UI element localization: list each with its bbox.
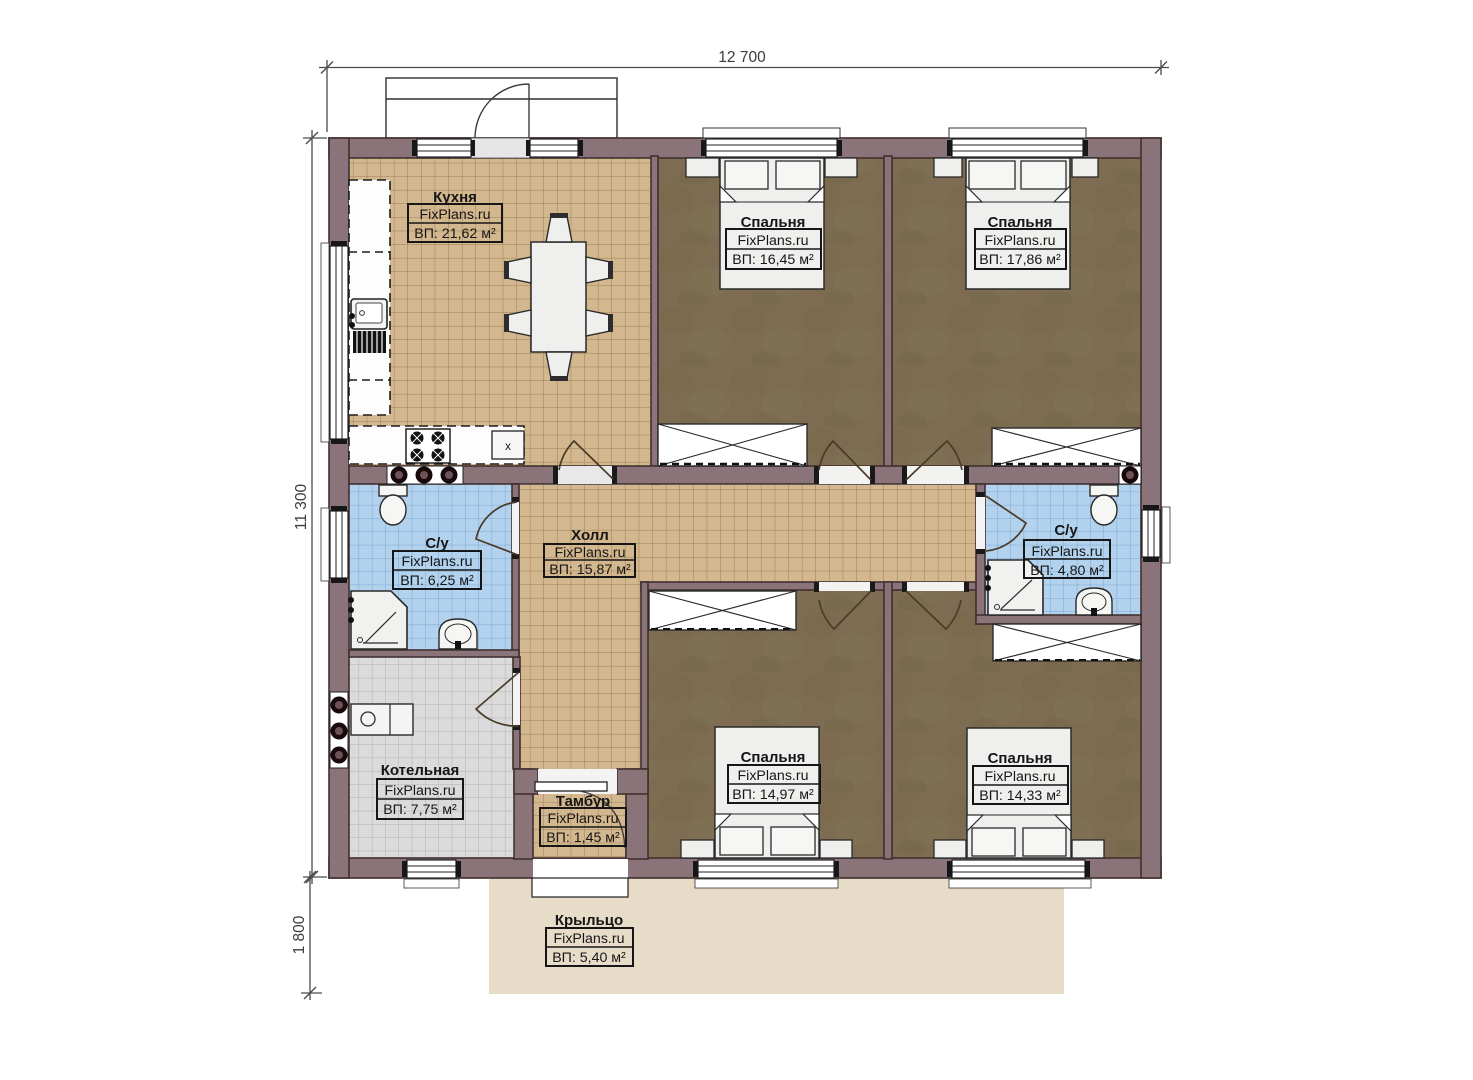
svg-text:12 700: 12 700: [718, 49, 766, 66]
svg-text:ВП: 7,75 м²: ВП: 7,75 м²: [383, 802, 457, 818]
svg-text:11 300: 11 300: [293, 483, 310, 530]
svg-text:ВП: 17,86 м²: ВП: 17,86 м²: [979, 252, 1061, 268]
svg-text:Котельная: Котельная: [381, 762, 460, 779]
svg-text:ВП: 5,40 м²: ВП: 5,40 м²: [552, 950, 626, 966]
svg-text:ВП: 16,45 м²: ВП: 16,45 м²: [732, 252, 814, 268]
svg-text:ВП: 14,97 м²: ВП: 14,97 м²: [732, 787, 814, 803]
svg-text:FixPlans.ru: FixPlans.ru: [738, 768, 809, 784]
svg-text:x: x: [505, 439, 511, 453]
svg-text:С/у: С/у: [1054, 522, 1078, 539]
svg-text:FixPlans.ru: FixPlans.ru: [555, 545, 626, 561]
svg-text:Крыльцо: Крыльцо: [555, 912, 623, 929]
svg-text:ВП: 21,62 м²: ВП: 21,62 м²: [414, 226, 496, 242]
svg-text:FixPlans.ru: FixPlans.ru: [548, 811, 619, 827]
svg-text:FixPlans.ru: FixPlans.ru: [420, 207, 491, 223]
svg-text:FixPlans.ru: FixPlans.ru: [985, 769, 1056, 785]
svg-text:1 800: 1 800: [291, 915, 308, 954]
svg-text:ВП: 15,87 м²: ВП: 15,87 м²: [549, 562, 631, 578]
svg-text:FixPlans.ru: FixPlans.ru: [554, 931, 625, 947]
svg-text:FixPlans.ru: FixPlans.ru: [385, 783, 456, 799]
svg-text:С/у: С/у: [425, 535, 449, 552]
svg-text:FixPlans.ru: FixPlans.ru: [402, 554, 473, 570]
svg-text:Спальня: Спальня: [741, 749, 806, 766]
svg-text:ВП: 4,80 м²: ВП: 4,80 м²: [1030, 563, 1104, 579]
svg-text:FixPlans.ru: FixPlans.ru: [738, 233, 809, 249]
svg-text:Холл: Холл: [571, 527, 609, 544]
svg-text:ВП: 1,45 м²: ВП: 1,45 м²: [546, 830, 620, 846]
svg-text:FixPlans.ru: FixPlans.ru: [1032, 544, 1103, 560]
svg-text:FixPlans.ru: FixPlans.ru: [985, 233, 1056, 249]
svg-text:ВП: 14,33 м²: ВП: 14,33 м²: [979, 788, 1061, 804]
svg-text:Спальня: Спальня: [988, 750, 1053, 767]
svg-text:ВП: 6,25 м²: ВП: 6,25 м²: [400, 573, 474, 589]
